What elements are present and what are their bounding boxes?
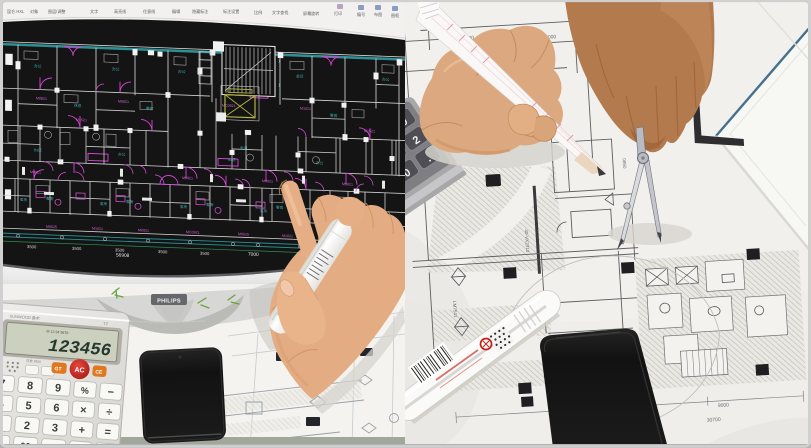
- svg-text:编号: 编号: [357, 11, 365, 17]
- svg-text:3500: 3500: [158, 249, 168, 254]
- svg-text:AC: AC: [74, 367, 85, 375]
- svg-text:CE: CE: [95, 369, 103, 376]
- svg-text:隐藏标注: 隐藏标注: [192, 8, 208, 14]
- svg-text:昆仑.HXL: 昆仑.HXL: [7, 8, 25, 14]
- svg-text:客房: 客房: [180, 204, 188, 209]
- svg-text:MC0921: MC0921: [222, 104, 236, 109]
- svg-text:3500: 3500: [72, 246, 82, 251]
- svg-text:办公: 办公: [178, 69, 186, 74]
- svg-text:M0921: M0921: [138, 228, 149, 232]
- svg-text:对象: 对象: [30, 8, 38, 14]
- svg-text:客房: 客房: [276, 205, 284, 210]
- svg-text:=: =: [104, 426, 111, 438]
- svg-text:办公: 办公: [112, 66, 120, 71]
- svg-text:M0921: M0921: [182, 176, 193, 180]
- svg-text:B3区: B3区: [34, 148, 42, 152]
- svg-text:屏幕旋转: 屏幕旋转: [303, 10, 319, 16]
- svg-text:客房: 客房: [330, 113, 338, 118]
- svg-text:客房: 客房: [100, 201, 108, 206]
- svg-text:M1021: M1021: [282, 234, 293, 238]
- svg-text:×: ×: [80, 404, 87, 416]
- svg-text:比例: 比例: [254, 9, 262, 15]
- svg-text:标注设置: 标注设置: [223, 8, 239, 14]
- svg-text:3500: 3500: [27, 244, 37, 249]
- svg-text:住意线: 住意线: [143, 8, 155, 14]
- svg-text:办公: 办公: [316, 160, 324, 165]
- svg-text:MC0921: MC0921: [186, 230, 200, 235]
- svg-text:−: −: [107, 386, 114, 398]
- svg-text:M1521: M1521: [76, 118, 87, 122]
- svg-text:%: %: [81, 385, 90, 396]
- svg-text:7000: 7000: [248, 252, 259, 258]
- svg-text:6: 6: [53, 402, 60, 414]
- svg-text:高亮线: 高亮线: [114, 8, 126, 14]
- svg-text:走道: 走道: [240, 145, 248, 150]
- svg-text:÷: ÷: [106, 406, 113, 418]
- svg-text:M0921: M0921: [262, 179, 273, 183]
- svg-text:文字: 文字: [90, 8, 98, 14]
- svg-text:编辑: 编辑: [172, 8, 180, 14]
- svg-text:M0821: M0821: [30, 170, 41, 174]
- svg-text:休息: 休息: [74, 103, 82, 108]
- svg-text:30700: 30700: [707, 417, 721, 424]
- svg-text:会议: 会议: [296, 73, 304, 78]
- svg-text:56908: 56908: [116, 252, 130, 259]
- svg-text:M1021: M1021: [300, 107, 311, 111]
- svg-text:5: 5: [25, 400, 32, 412]
- svg-text:8: 8: [27, 380, 34, 392]
- svg-text:LM7541: LM7541: [452, 301, 458, 318]
- svg-text:PHILIPS: PHILIPS: [157, 299, 181, 305]
- svg-text:M0525: M0525: [46, 225, 57, 229]
- svg-text:布图: 布图: [374, 11, 382, 17]
- svg-text:客房: 客房: [146, 106, 154, 111]
- svg-text:3: 3: [51, 422, 58, 434]
- svg-text:客房: 客房: [260, 208, 268, 213]
- svg-text:M0821: M0821: [36, 96, 47, 100]
- svg-text:图框: 图框: [391, 12, 399, 18]
- svg-text:0850: 0850: [622, 158, 628, 169]
- svg-text:9000: 9000: [718, 402, 730, 409]
- svg-text:+: +: [78, 424, 85, 436]
- svg-text:GT: GT: [54, 366, 61, 373]
- svg-text:2: 2: [23, 420, 30, 432]
- svg-text:M1521: M1521: [364, 129, 375, 133]
- svg-text:9: 9: [54, 382, 61, 394]
- svg-text:文字查找: 文字查找: [272, 9, 288, 15]
- svg-text:客房: 客房: [20, 197, 28, 202]
- svg-text:图层/调整: 图层/调整: [48, 8, 66, 14]
- svg-text:3500: 3500: [115, 247, 125, 252]
- svg-text:M1021: M1021: [92, 227, 103, 231]
- svg-text:打印: 打印: [334, 10, 342, 16]
- svg-text:M0921: M0921: [342, 182, 353, 186]
- svg-text:B2区: B2区: [228, 158, 236, 162]
- svg-text:办公: 办公: [34, 63, 42, 68]
- svg-text:M0525: M0525: [238, 232, 249, 236]
- svg-text:3500: 3500: [200, 251, 210, 256]
- svg-text:M0821: M0821: [118, 100, 129, 104]
- svg-text:办公: 办公: [118, 152, 126, 157]
- svg-text:办公: 办公: [382, 77, 390, 82]
